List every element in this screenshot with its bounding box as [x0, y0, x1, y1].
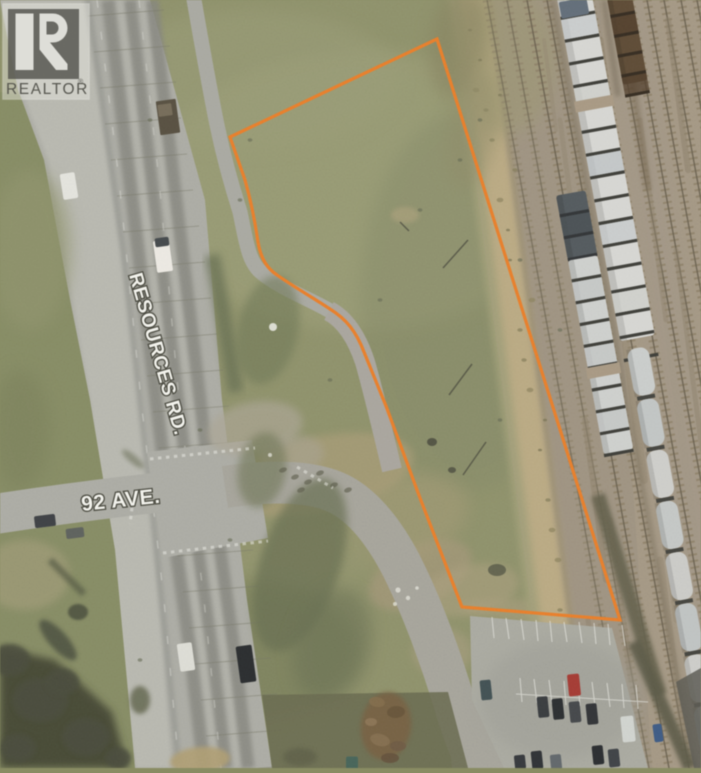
svg-text:®: ® [78, 78, 84, 86]
svg-text:REALTOR: REALTOR [6, 81, 89, 98]
